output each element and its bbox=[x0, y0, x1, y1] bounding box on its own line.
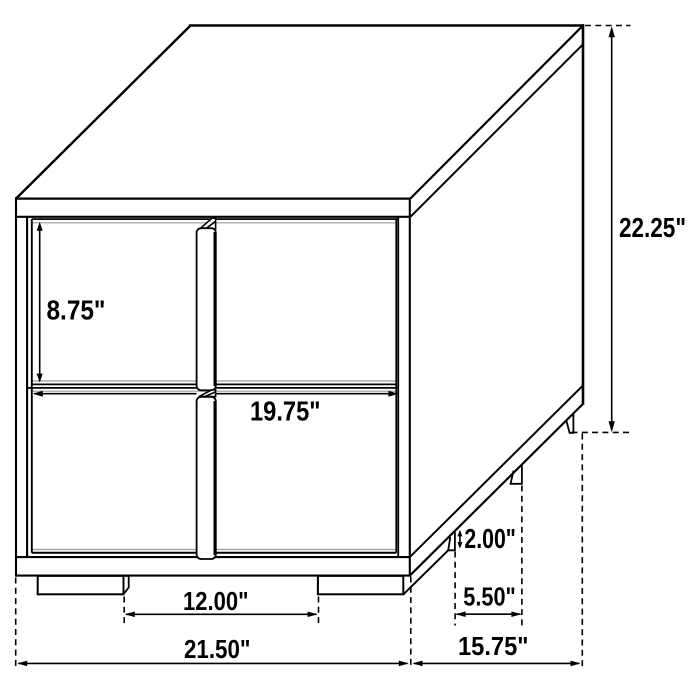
svg-text:15.75": 15.75" bbox=[458, 633, 529, 661]
svg-text:2.00": 2.00" bbox=[464, 523, 516, 554]
svg-text:19.75": 19.75" bbox=[250, 395, 321, 426]
svg-text:5.50": 5.50" bbox=[463, 584, 516, 612]
svg-text:8.75": 8.75" bbox=[47, 295, 106, 326]
svg-text:12.00": 12.00" bbox=[183, 588, 249, 616]
svg-text:21.50": 21.50" bbox=[184, 636, 251, 664]
svg-text:22.25": 22.25" bbox=[619, 212, 686, 243]
